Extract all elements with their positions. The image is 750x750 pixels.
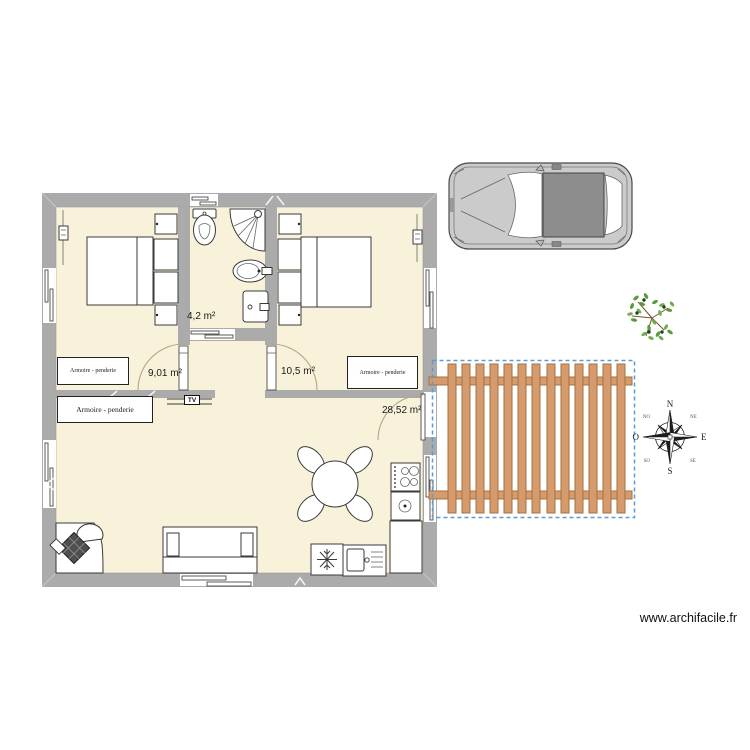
wardrobe-label: Armoire - penderie	[76, 405, 133, 414]
corner-desk[interactable]	[50, 523, 103, 573]
sliding-door-bottom[interactable]	[180, 574, 253, 586]
bed-left[interactable]	[87, 237, 153, 305]
hotplate-unit[interactable]	[391, 492, 420, 520]
floor-plan-canvas: N E S O NO NE SO SE Armoire - penderie A…	[0, 0, 750, 750]
sofa[interactable]	[163, 527, 257, 573]
window-living-left[interactable]	[43, 440, 56, 508]
window-bathroom-top[interactable]	[190, 194, 218, 206]
car[interactable]	[449, 163, 632, 249]
area-label-bathroom: 4,2 m²	[187, 311, 215, 322]
compass-nw-label: NO	[643, 415, 651, 420]
nightstands-left[interactable]	[154, 214, 178, 325]
wardrobe-bedroom-right[interactable]: Armoire - penderie	[347, 356, 418, 389]
toilet[interactable]	[193, 209, 216, 245]
tv-label: TV	[188, 397, 196, 404]
area-label-living: 28,52 m²	[382, 405, 421, 416]
wardrobe-label: Armoire - penderie	[360, 370, 406, 376]
kitchen-counter[interactable]	[390, 521, 422, 573]
wardrobe-living[interactable]: Armoire - penderie	[57, 396, 153, 423]
compass-east-label: E	[701, 432, 707, 442]
wardrobe-label: Armoire - penderie	[70, 368, 116, 374]
window-living-right[interactable]	[424, 455, 436, 522]
wardrobe-bedroom-left[interactable]: Armoire - penderie	[57, 357, 129, 385]
compass-ne-label: NE	[690, 415, 697, 420]
compass-north-label: N	[667, 399, 674, 409]
tv[interactable]: TV	[184, 395, 200, 405]
compass-south-label: S	[667, 466, 672, 476]
deck[interactable]	[429, 361, 635, 518]
stove[interactable]	[391, 463, 420, 491]
compass-west-label: O	[633, 432, 640, 442]
sliding-door-bathroom[interactable]	[190, 329, 235, 340]
freezer[interactable]	[311, 544, 343, 575]
area-label-bedroom-right: 10,5 m²	[281, 366, 315, 377]
tree[interactable]	[627, 292, 675, 341]
kitchen-sink[interactable]	[343, 545, 386, 576]
archifacile-watermark: www.archifacile.fr	[640, 611, 737, 625]
nightstands-right[interactable]	[278, 214, 302, 325]
compass-se-label: SE	[690, 459, 696, 464]
window-bedroom-right[interactable]	[424, 268, 436, 328]
water-heater[interactable]	[243, 291, 269, 322]
area-label-bedroom-left: 9,01 m²	[148, 368, 182, 379]
compass-sw-label: SO	[644, 459, 651, 464]
bed-right[interactable]	[301, 237, 371, 307]
window-bedroom-left[interactable]	[43, 268, 56, 323]
compass-rose[interactable]: N E S O NO NE SO SE	[633, 399, 708, 476]
